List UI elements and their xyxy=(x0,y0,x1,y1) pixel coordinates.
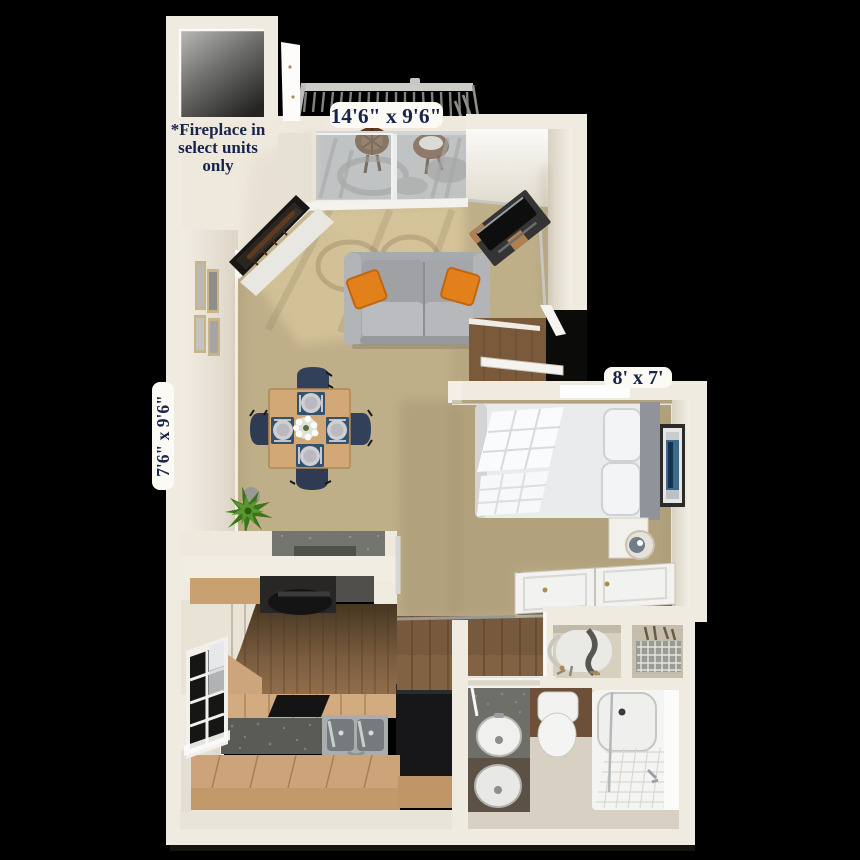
svg-text:*Fireplace in: *Fireplace in xyxy=(171,120,266,139)
svg-text:only: only xyxy=(202,156,234,175)
svg-text:7'6" x 9'6": 7'6" x 9'6" xyxy=(153,395,173,477)
svg-text:8' x 7': 8' x 7' xyxy=(612,367,663,389)
svg-text:select units: select units xyxy=(178,138,258,157)
svg-text:14'6" x 9'6": 14'6" x 9'6" xyxy=(330,104,441,128)
